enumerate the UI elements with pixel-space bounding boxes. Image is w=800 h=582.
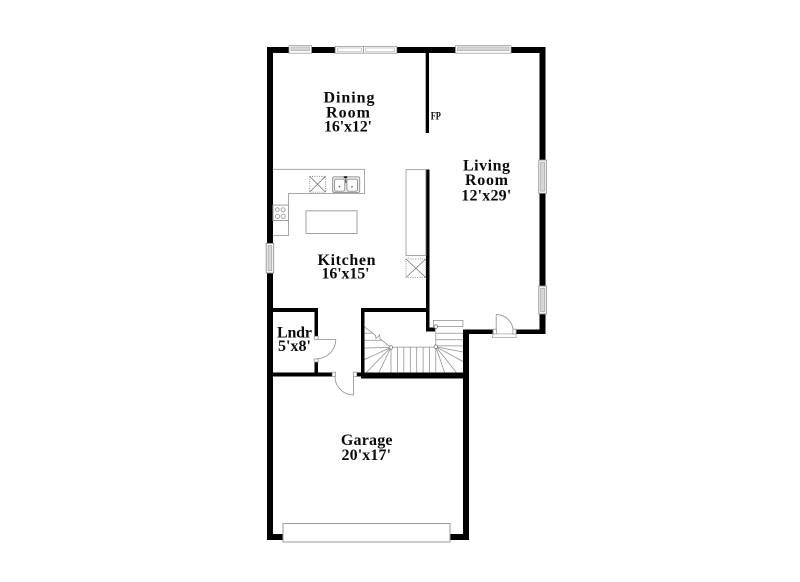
svg-text:12'x29': 12'x29': [461, 188, 511, 205]
svg-text:FP: FP: [431, 111, 441, 123]
svg-text:Room: Room: [465, 172, 509, 189]
svg-text:16'x12': 16'x12': [324, 119, 372, 136]
svg-text:5'x8': 5'x8': [278, 338, 311, 355]
svg-text:20'x17': 20'x17': [342, 447, 392, 464]
svg-text:16'x15': 16'x15': [322, 266, 370, 283]
